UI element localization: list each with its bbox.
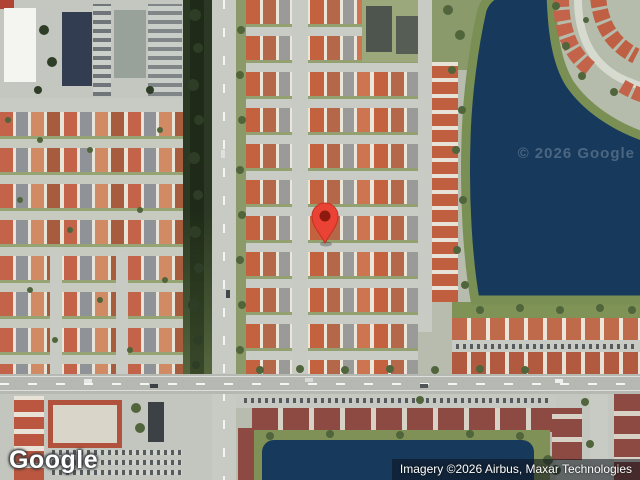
map-pin-icon[interactable] [312,203,338,247]
imagery-attribution: Imagery ©2026 Airbus, Maxar Technologies [392,459,640,480]
trees-dark [34,9,204,369]
map-overlay [0,0,640,480]
pin-shadow [320,242,332,247]
google-watermark: © 2026 Google [505,145,635,162]
satellite-map[interactable]: © 2026 Google Google Imagery ©2026 Airbu… [0,0,640,480]
pin-hole [320,211,331,222]
pin-body [312,203,338,243]
google-logo[interactable]: Google [9,446,98,475]
